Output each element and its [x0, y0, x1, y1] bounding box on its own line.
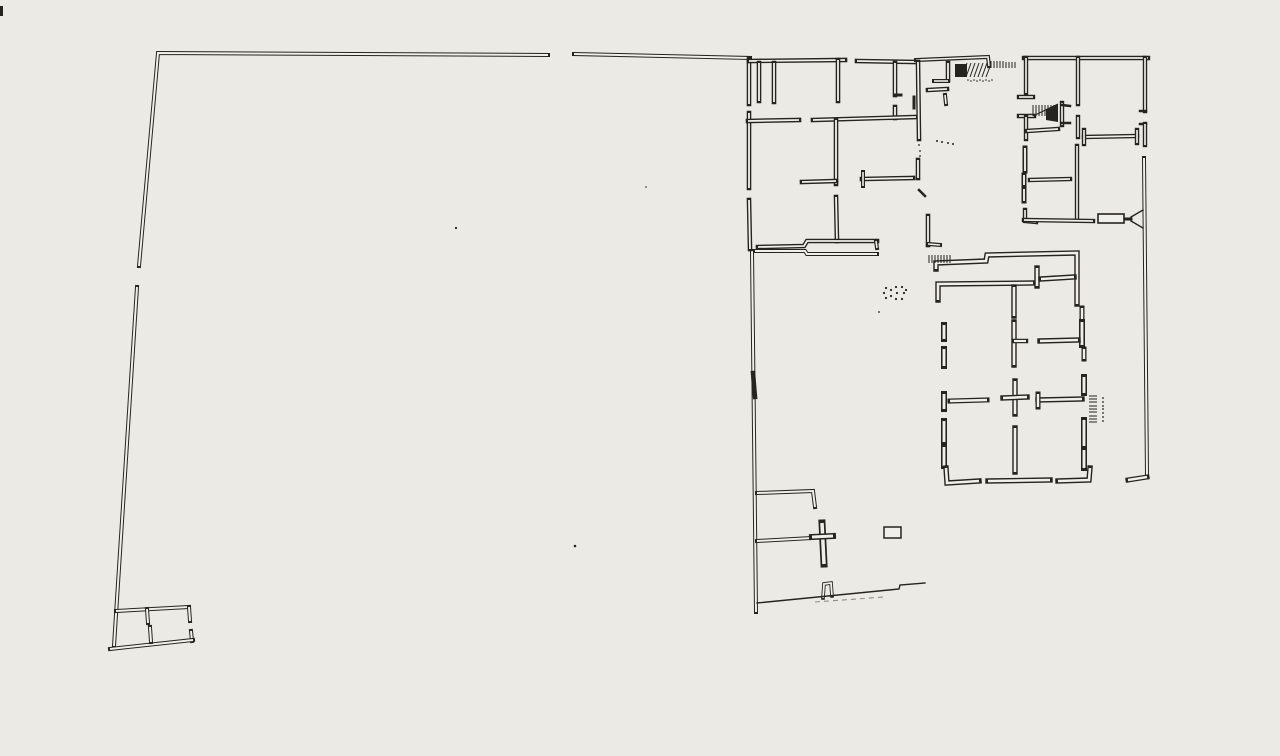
- dashed-line: [815, 597, 884, 602]
- upper-left-building-core: [749, 60, 845, 61]
- upper-left-building-core: [876, 241, 877, 248]
- enclosure-walls-core: [114, 287, 137, 646]
- dot-mark: [895, 298, 897, 300]
- enclosure-walls: [110, 53, 1147, 649]
- dot-mark: [941, 141, 943, 143]
- upper-left-building-core: [836, 197, 837, 241]
- upper-right-building-segment: [1131, 221, 1143, 228]
- dot-mark: [1102, 397, 1104, 399]
- enclosure-walls-segment: [757, 583, 925, 603]
- ink-marks-segment: [753, 373, 755, 397]
- upper-left-building-core: [857, 61, 916, 62]
- upper-left-building-segment: [919, 190, 925, 196]
- dot-mark: [878, 311, 880, 313]
- courtyard-house-core: [1038, 399, 1082, 400]
- dot-mark: [970, 80, 972, 82]
- floor-plan-drawing: [0, 0, 1280, 756]
- dot-mark: [936, 140, 938, 142]
- upper-right-building-core: [1084, 136, 1137, 137]
- dot-mark: [952, 143, 954, 145]
- upper-right-building-core: [1024, 220, 1093, 221]
- dot-mark: [988, 80, 990, 82]
- enclosure-walls-core: [147, 609, 148, 623]
- dot-mark: [883, 292, 885, 294]
- upper-left-building-core: [749, 200, 750, 249]
- dot-mark: [919, 155, 921, 157]
- scanned-plan-page: Hand-drawn archaeological site floor pla…: [0, 0, 1280, 756]
- ink-marks: [753, 373, 755, 397]
- upper-left-building-core: [862, 178, 913, 179]
- dot-mark: [976, 80, 978, 82]
- courtyard-house-core: [950, 400, 987, 401]
- enclosure-walls-core: [189, 607, 190, 621]
- dot-mark: [1102, 420, 1104, 422]
- dot-mark: [967, 79, 969, 81]
- upper-left-building-core: [748, 120, 799, 121]
- court-feature-rect: [884, 527, 901, 538]
- enclosure-walls-core: [822, 523, 824, 564]
- dot-mark: [885, 287, 887, 289]
- threshold-block: [1098, 214, 1124, 223]
- courtyard-house-core: [988, 480, 1050, 481]
- dot-mark: [919, 150, 921, 152]
- dot-mark: [455, 227, 457, 229]
- stair-landing-square: [955, 64, 967, 77]
- dot-mark: [947, 142, 949, 144]
- dot-mark: [973, 79, 975, 81]
- dot-mark: [645, 186, 647, 188]
- upper-right-building: [1019, 58, 1148, 228]
- dot-mark: [982, 80, 984, 82]
- dot-mark: [574, 545, 577, 548]
- upper-left-building-core: [945, 95, 946, 104]
- enclosure-walls-core: [812, 536, 833, 537]
- dot-marks: [455, 79, 1104, 547]
- scan-edge-speck: [0, 6, 3, 16]
- plan-features: [0, 6, 1124, 538]
- upper-left-building-core: [918, 62, 919, 139]
- enclosure-walls-core: [139, 53, 548, 266]
- upper-left-building-core: [928, 244, 940, 245]
- upper-right-building-core: [1030, 179, 1070, 180]
- courtyard-house: [936, 253, 1090, 483]
- dot-mark: [985, 79, 987, 81]
- dot-mark: [901, 286, 903, 288]
- upper-left-building: [748, 57, 989, 249]
- dot-mark: [979, 79, 981, 81]
- dot-mark: [1102, 401, 1104, 403]
- dot-mark: [903, 292, 905, 294]
- upper-right-building-segment: [1062, 105, 1070, 106]
- dot-mark: [1102, 405, 1104, 407]
- upper-left-building-core: [928, 89, 947, 90]
- dot-mark: [890, 289, 892, 291]
- dot-mark: [991, 79, 993, 81]
- courtyard-house-core: [1040, 340, 1078, 341]
- enclosure-walls-core: [150, 627, 151, 642]
- enclosure-walls-segment: [139, 53, 548, 266]
- dot-mark: [1102, 408, 1104, 410]
- dot-mark: [901, 298, 903, 300]
- dot-mark: [1102, 416, 1104, 418]
- dot-mark: [1102, 412, 1104, 414]
- dot-mark: [905, 289, 907, 291]
- faint-dashed-lines: [815, 597, 884, 602]
- dot-mark: [918, 144, 920, 146]
- upper-right-building-segment: [1131, 210, 1143, 217]
- upper-left-building-core: [802, 181, 836, 182]
- hatching: [929, 61, 1097, 422]
- upper-left-building-core: [758, 241, 877, 247]
- dot-mark: [896, 292, 898, 294]
- courtyard-house-segment: [938, 283, 1033, 300]
- courtyard-house-core: [1003, 397, 1027, 398]
- dot-mark: [885, 297, 887, 299]
- dot-mark: [895, 286, 897, 288]
- dot-mark: [890, 295, 892, 297]
